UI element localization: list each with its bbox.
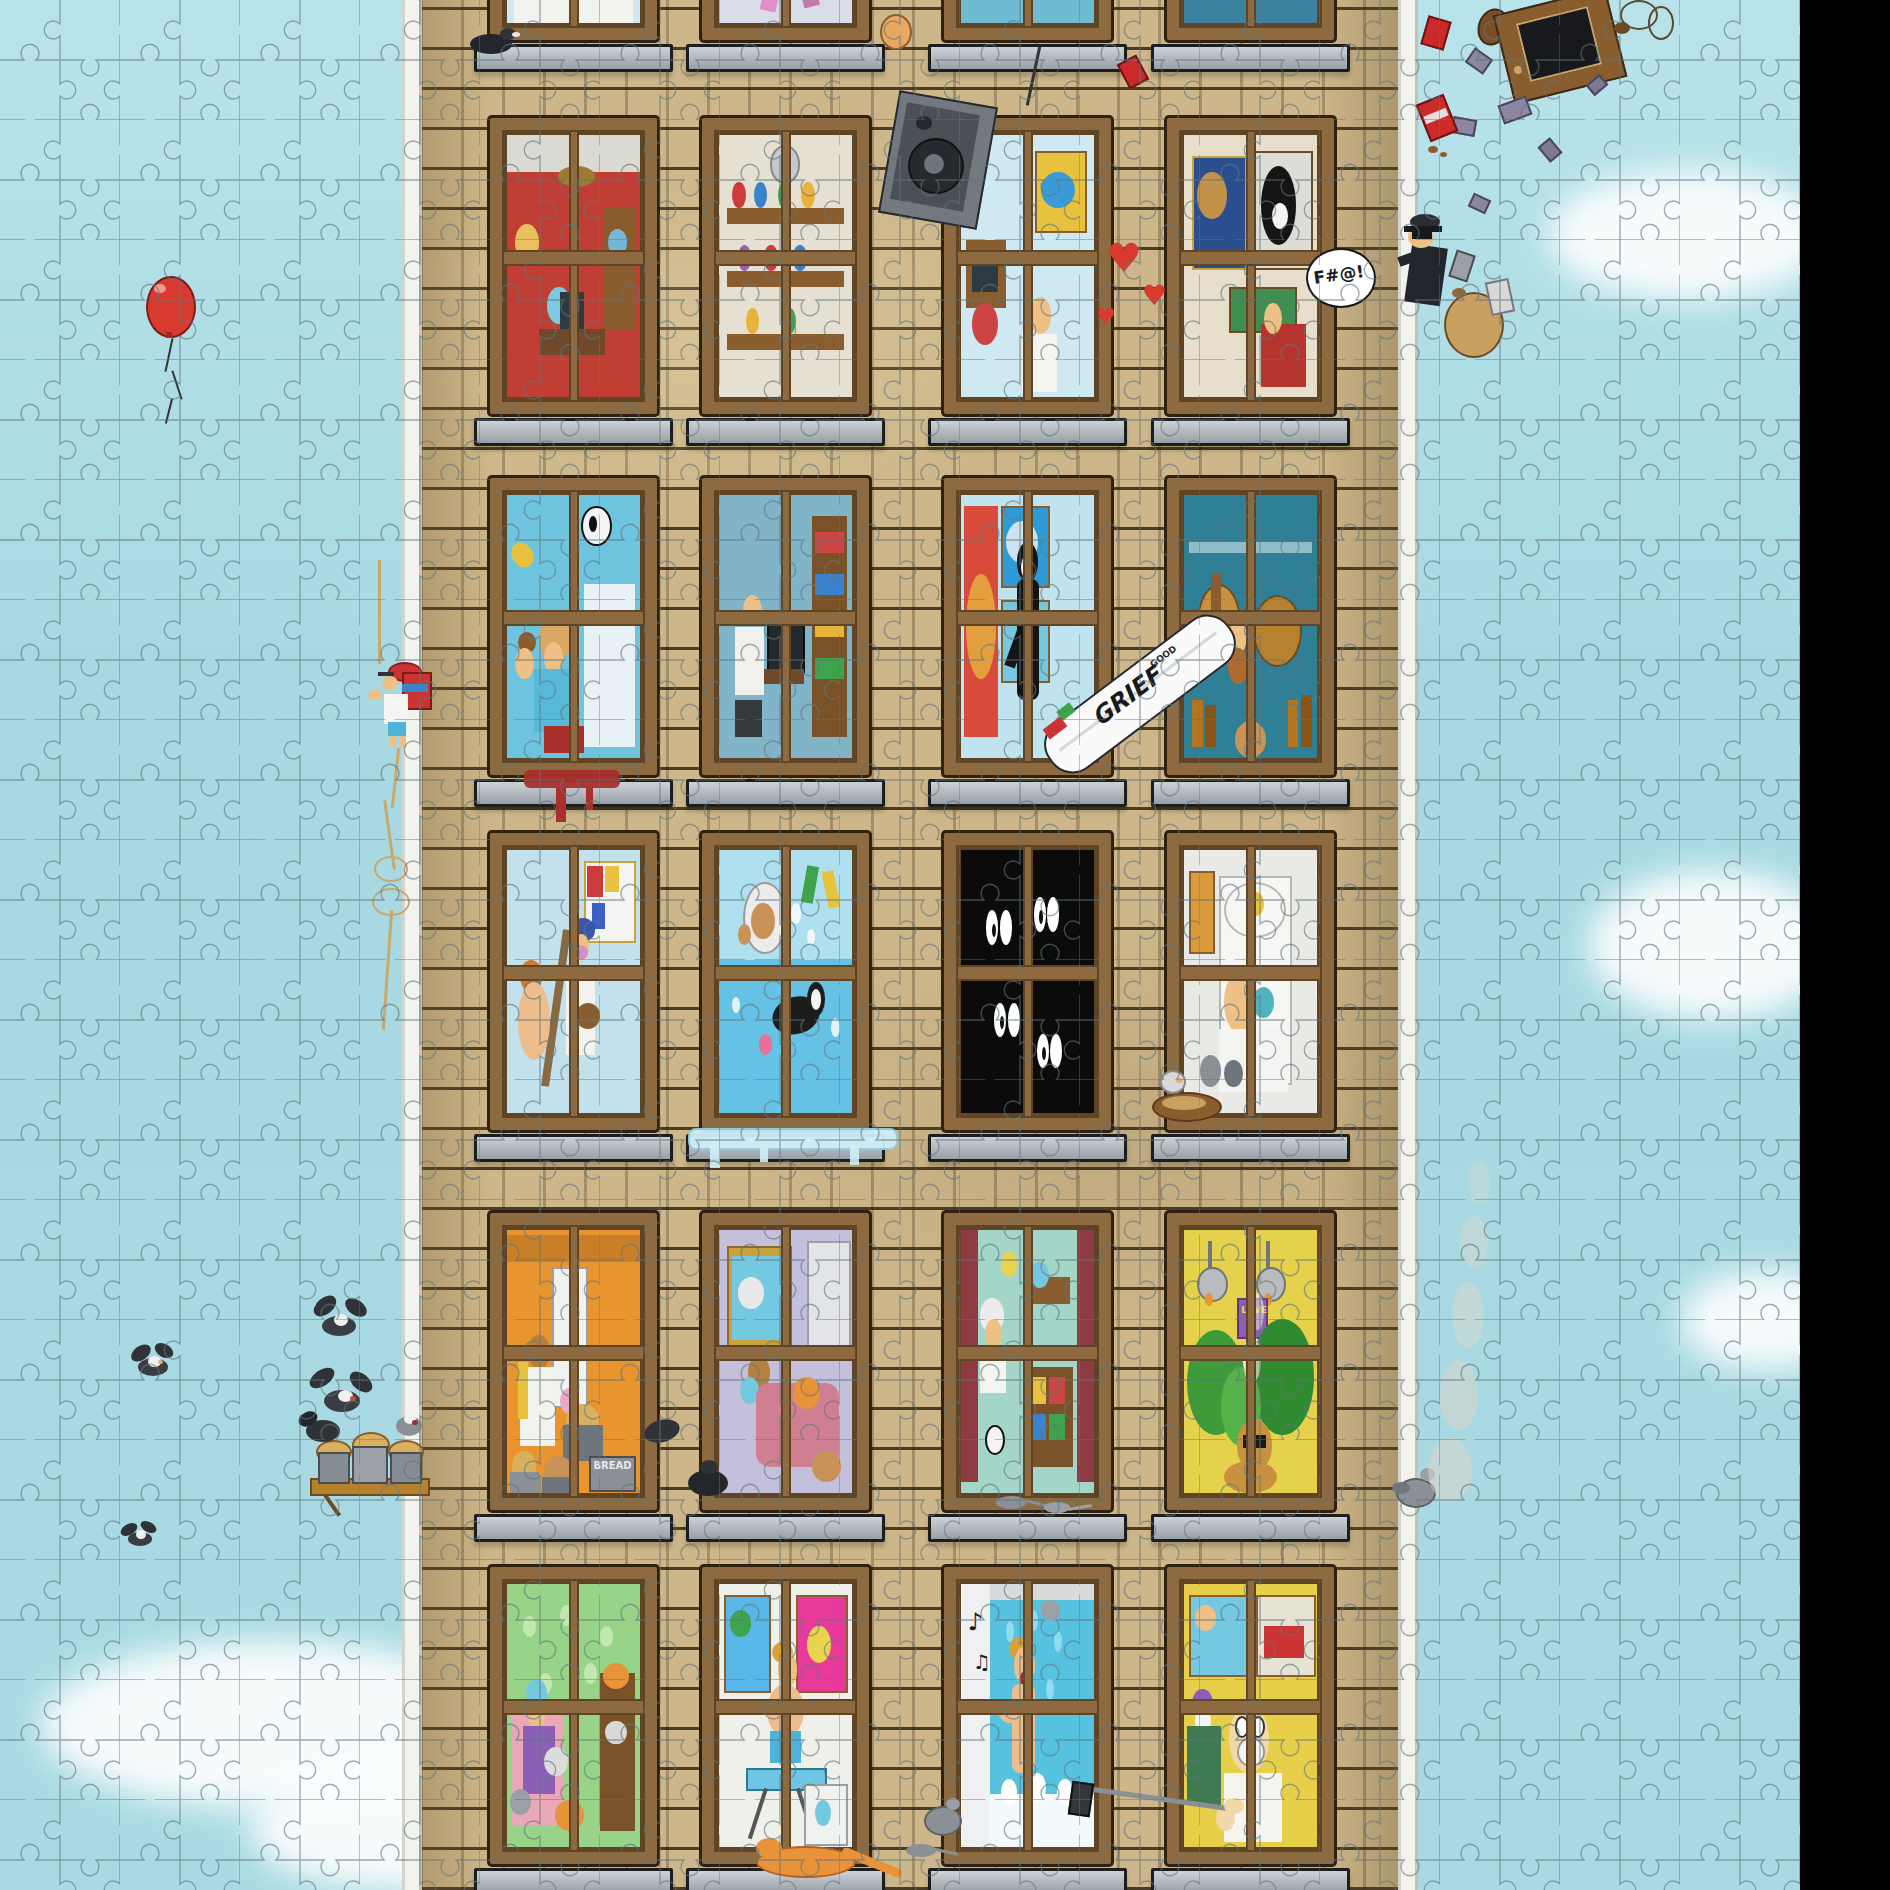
- shape-block: [1030, 1414, 1046, 1440]
- glazing-bar-vertical: [1023, 1225, 1033, 1498]
- shape-ellipse: [1176, 1078, 1183, 1083]
- shape-block: [1205, 705, 1216, 747]
- glazing-bar-horizontal: [1179, 250, 1322, 266]
- shape-ellipse: [350, 1396, 356, 1401]
- shape-block: [391, 748, 400, 808]
- shape-ellipse: [306, 1363, 338, 1392]
- shape-block: [586, 788, 593, 810]
- shape-ellipse: [946, 1798, 960, 1810]
- glazing-bar-vertical: [569, 845, 579, 1118]
- window-ironing-man: [702, 1567, 869, 1864]
- shape-ellipse: [916, 116, 932, 130]
- shape-ellipse: [1648, 6, 1674, 40]
- shape-block: [801, 865, 819, 903]
- shape-ellipse: [605, 1721, 626, 1745]
- glazing-bar-horizontal: [714, 965, 857, 981]
- window-flooded-bathroom-diver: [702, 833, 869, 1130]
- shape-ellipse: [523, 1616, 536, 1637]
- window-sill: [474, 418, 673, 446]
- shape-block: [323, 1493, 341, 1517]
- shape-ellipse: [1030, 1262, 1049, 1288]
- shape-text: BREAD: [593, 1461, 633, 1487]
- shape-block: [534, 669, 574, 732]
- shape-ellipse: [146, 276, 196, 338]
- shape-ellipse: [924, 1806, 962, 1836]
- glazing-bar-vertical: [781, 845, 791, 1118]
- shape-ellipse: [791, 903, 802, 924]
- shape-ellipse: [1200, 1055, 1221, 1087]
- shape-block: [1301, 695, 1312, 748]
- shape-ellipse: [880, 14, 912, 50]
- shape-ellipse: [746, 308, 759, 334]
- glazing-bar-vertical: [1246, 1579, 1256, 1852]
- shape-ellipse: [1162, 1096, 1206, 1110]
- shape-ellipse: [1000, 1016, 1004, 1029]
- shape-ellipse: [992, 924, 996, 937]
- shape-ellipse: [996, 1496, 1026, 1509]
- shape-block: [1068, 1781, 1095, 1818]
- shape-block: [815, 658, 844, 679]
- shape-ellipse: [334, 1314, 348, 1326]
- glazing-bar-horizontal: [1179, 1345, 1322, 1361]
- shape-block: [388, 722, 406, 736]
- shape-block: [815, 574, 844, 595]
- shape-ellipse: [815, 1800, 831, 1826]
- shape-block: [390, 1452, 422, 1484]
- glazing-bar-vertical: [569, 0, 579, 28]
- window-man-at-computer: [702, 478, 869, 775]
- window-sill: [686, 418, 885, 446]
- shape-block: [524, 770, 620, 788]
- window-painter-and-model: [490, 833, 657, 1130]
- shape-ellipse: [544, 1747, 568, 1776]
- glazing-bar-vertical: [1023, 130, 1033, 402]
- shape-ellipse: [738, 1277, 765, 1309]
- shape-ellipse: [756, 1838, 782, 1858]
- shape-ellipse: [751, 903, 775, 940]
- window-sill: [928, 1134, 1127, 1162]
- shape-block: [1192, 700, 1203, 747]
- shape-ellipse: [793, 1377, 820, 1409]
- shape-ellipse: [1452, 1282, 1484, 1348]
- shape-ellipse: [807, 929, 815, 945]
- shape-ellipse: [924, 154, 944, 174]
- shape-ellipse: [600, 1626, 613, 1647]
- shape-ellipse: [1037, 1597, 1064, 1625]
- shape-block: [1264, 1626, 1304, 1658]
- glazing-bar-horizontal: [956, 965, 1099, 981]
- window-legs-partial: [702, 0, 869, 40]
- shape-ellipse: [1468, 1160, 1490, 1204]
- shape-block: [1420, 15, 1451, 50]
- glazing-bar-vertical: [569, 1225, 579, 1498]
- glazing-bar-horizontal: [502, 1345, 645, 1361]
- shape-ellipse: [1050, 1034, 1062, 1068]
- window-sill: [474, 1868, 673, 1890]
- shape-block: [318, 1452, 350, 1484]
- window-stoner-plants: LOVE: [1167, 1213, 1334, 1510]
- shape-block: [748, 1787, 768, 1838]
- shape-block: [1187, 1726, 1222, 1805]
- shape-ellipse: [368, 690, 382, 700]
- shape-block: [807, 1241, 851, 1361]
- glazing-bar-horizontal: [1179, 1699, 1322, 1715]
- shape-block: [390, 736, 396, 748]
- shape-ellipse: [1392, 1482, 1410, 1494]
- window-dog-and-cans-partial: [944, 0, 1111, 40]
- shape-block: [850, 1146, 859, 1165]
- shape-ellipse: [801, 182, 814, 208]
- cloud: [1548, 170, 1828, 300]
- shape-block: [1288, 700, 1299, 747]
- shape-ellipse: [374, 856, 408, 882]
- shape-block: [518, 1362, 529, 1420]
- shape-block: [402, 684, 428, 692]
- window-sill: [474, 1134, 673, 1162]
- shape-ellipse: [732, 182, 745, 208]
- shape-ellipse: [1514, 66, 1522, 74]
- glazing-bar-vertical: [569, 490, 579, 763]
- shape-block: [384, 694, 408, 724]
- window-sill: [686, 44, 885, 72]
- shape-ellipse: [154, 284, 166, 293]
- shape-block: [165, 398, 173, 424]
- window-sill: [686, 1514, 885, 1542]
- window-sill: [1151, 418, 1350, 446]
- glazing-bar-vertical: [1023, 490, 1033, 763]
- window-sill: [928, 779, 1127, 807]
- window-nap-with-cat: [702, 1213, 869, 1510]
- glazing-bar-vertical: [1023, 1579, 1033, 1852]
- glazing-bar-horizontal: [956, 1699, 1099, 1715]
- shape-ellipse: [831, 1018, 840, 1036]
- shape-ellipse: [515, 648, 534, 680]
- window-kids-chaos-soccer: [490, 478, 657, 775]
- window-sill: [928, 44, 1127, 72]
- shape-ellipse: [507, 539, 539, 572]
- shape-text: ♥: [1096, 306, 1120, 330]
- shape-block: [603, 208, 635, 329]
- shape-ellipse: [1000, 910, 1012, 944]
- glazing-bar-vertical: [569, 130, 579, 402]
- window-sill: [474, 1514, 673, 1542]
- shape-ellipse: [1195, 1605, 1216, 1631]
- shape-block: [990, 1584, 1094, 1600]
- window-dark-window-watching-eyes: [944, 833, 1111, 1130]
- shape-ellipse: [576, 1003, 600, 1029]
- window-sill: [1151, 1868, 1350, 1890]
- shape-block: [1189, 871, 1214, 954]
- shape-ellipse: [1224, 1060, 1243, 1086]
- shape-ellipse: [700, 1460, 718, 1474]
- shape-ellipse: [1054, 1631, 1062, 1652]
- window-bakery-kitchen: BREAD: [490, 1213, 657, 1510]
- window-selfie-man: [1167, 1567, 1334, 1864]
- shape-block: [1049, 1377, 1065, 1403]
- shape-ellipse: [1197, 172, 1226, 219]
- shape-ellipse: [1440, 1360, 1478, 1430]
- shape-ellipse: [754, 182, 767, 208]
- shape-ellipse: [807, 1626, 831, 1663]
- window-sill: [928, 1514, 1127, 1542]
- window-cat-lady: [490, 1567, 657, 1864]
- shape-block: [822, 870, 841, 908]
- glazing-bar-vertical: [1246, 490, 1256, 763]
- glazing-bar-horizontal: [502, 965, 645, 981]
- shape-ellipse: [906, 1844, 936, 1857]
- building-left-edge: [402, 0, 422, 1890]
- shape-ellipse: [738, 924, 751, 945]
- window-sill: [1151, 1514, 1350, 1542]
- shape-ellipse: [1428, 1438, 1472, 1502]
- shape-ellipse: [412, 1420, 418, 1425]
- shape-block: [1497, 95, 1532, 124]
- shape-ellipse: [512, 32, 520, 37]
- shape-ellipse: [1001, 1779, 1017, 1805]
- glazing-bar-horizontal: [956, 250, 1099, 266]
- shape-block: [382, 910, 393, 1030]
- shape-block: [164, 338, 173, 372]
- glazing-bar-horizontal: [956, 610, 1099, 626]
- glazing-bar-vertical: [781, 1579, 791, 1852]
- shape-ellipse: [1008, 1003, 1020, 1037]
- glazing-bar-vertical: [1246, 0, 1256, 28]
- glazing-bar-vertical: [1023, 0, 1033, 28]
- shape-block: [1261, 324, 1306, 387]
- window-red-lounge-granny-pc: [490, 118, 657, 414]
- shape-block: [510, 1472, 539, 1493]
- glazing-bar-horizontal: [502, 610, 645, 626]
- shape-ellipse: [1205, 1293, 1213, 1306]
- shape-text: ♪: [968, 1610, 981, 1636]
- window-can-store-partial: [1167, 0, 1334, 40]
- glazing-bar-horizontal: [714, 250, 857, 266]
- window-collector-shelves-disco: [702, 118, 869, 414]
- shape-ellipse: [972, 303, 999, 345]
- shape-block: [584, 584, 635, 747]
- window-sill: [1151, 1134, 1350, 1162]
- glazing-bar-vertical: [781, 490, 791, 763]
- shape-block: [378, 560, 381, 664]
- glazing-bar-horizontal: [502, 250, 645, 266]
- shape-block: [600, 1673, 635, 1831]
- shape-block: [605, 866, 618, 892]
- glazing-bar-vertical: [1023, 845, 1033, 1118]
- shape-ellipse: [1440, 152, 1447, 157]
- shape-block: [400, 736, 406, 748]
- shape-ellipse: [1047, 897, 1059, 931]
- glazing-bar-horizontal: [714, 1699, 857, 1715]
- shape-ellipse: [730, 1610, 751, 1636]
- black-side-bar: [1800, 0, 1890, 1890]
- shape-ellipse: [1044, 1502, 1070, 1513]
- shape-ellipse: [985, 1425, 1005, 1455]
- window-grandma-boardgames: [944, 1213, 1111, 1510]
- shape-block: [1465, 47, 1493, 74]
- glazing-bar-vertical: [569, 1579, 579, 1852]
- glazing-bar-vertical: [781, 1225, 791, 1498]
- glazing-bar-horizontal: [714, 610, 857, 626]
- shape-block: [760, 1146, 768, 1162]
- shape-ellipse: [1460, 1216, 1488, 1268]
- glazing-bar-vertical: [1246, 845, 1256, 1118]
- shape-ellipse: [1452, 288, 1466, 298]
- shape-ellipse: [518, 982, 550, 1061]
- shape-block: [587, 866, 603, 898]
- window-sill: [1151, 779, 1350, 807]
- glazing-bar-horizontal: [714, 1345, 857, 1361]
- shape-block: [1412, 232, 1432, 239]
- shape-block: [815, 532, 844, 553]
- window-sill: [686, 779, 885, 807]
- shape-ellipse: [1614, 22, 1630, 34]
- shape-text: ♥: [1106, 238, 1146, 278]
- shape-ellipse: [1030, 297, 1051, 334]
- glazing-bar-horizontal: [956, 1345, 1099, 1361]
- shape-block: [710, 1146, 720, 1168]
- shape-block: [1030, 1377, 1046, 1403]
- window-sill: [928, 1868, 1127, 1890]
- glazing-bar-vertical: [1246, 130, 1256, 402]
- shape-block: [352, 1446, 388, 1484]
- shape-block: [1537, 137, 1562, 163]
- shape-block: [1448, 250, 1476, 283]
- shape-ellipse: [136, 1530, 146, 1539]
- shape-ellipse: [1046, 1679, 1054, 1700]
- shape-ellipse: [966, 574, 995, 679]
- window-towel-man-pigeons: [1167, 833, 1334, 1130]
- shape-block: [735, 627, 764, 695]
- shape-block: [556, 788, 566, 822]
- glazing-bar-vertical: [781, 0, 791, 28]
- shape-text: ♫: [973, 1652, 986, 1678]
- shape-ellipse: [1272, 203, 1288, 229]
- shape-text: ♥: [1142, 282, 1172, 312]
- shape-ellipse: [382, 676, 398, 690]
- glazing-bar-vertical: [1246, 1225, 1256, 1498]
- glazing-bar-vertical: [781, 130, 791, 402]
- shape-block: [724, 1595, 771, 1694]
- puzzle-image: BREADLOVE♪♫ ♥♥♥F#@!GOODGRIEF: [0, 0, 1890, 1890]
- shape-block: [735, 700, 762, 737]
- shape-ellipse: [1224, 1798, 1244, 1814]
- window-sill: [928, 418, 1127, 446]
- glazing-bar-horizontal: [1179, 965, 1322, 981]
- shape-ellipse: [1253, 595, 1302, 667]
- window-shower-singer: ♪♫: [944, 1567, 1111, 1864]
- shape-block: [1049, 1414, 1065, 1440]
- shape-block: [171, 370, 182, 399]
- window-sill: [1151, 44, 1350, 72]
- shape-ellipse: [1001, 1251, 1017, 1277]
- shape-block: [1468, 193, 1492, 215]
- shape-ellipse: [1428, 146, 1438, 153]
- shape-ellipse: [584, 1663, 597, 1684]
- glazing-bar-horizontal: [502, 1699, 645, 1715]
- shape-ellipse: [158, 1360, 163, 1364]
- shape-ellipse: [985, 1319, 1002, 1348]
